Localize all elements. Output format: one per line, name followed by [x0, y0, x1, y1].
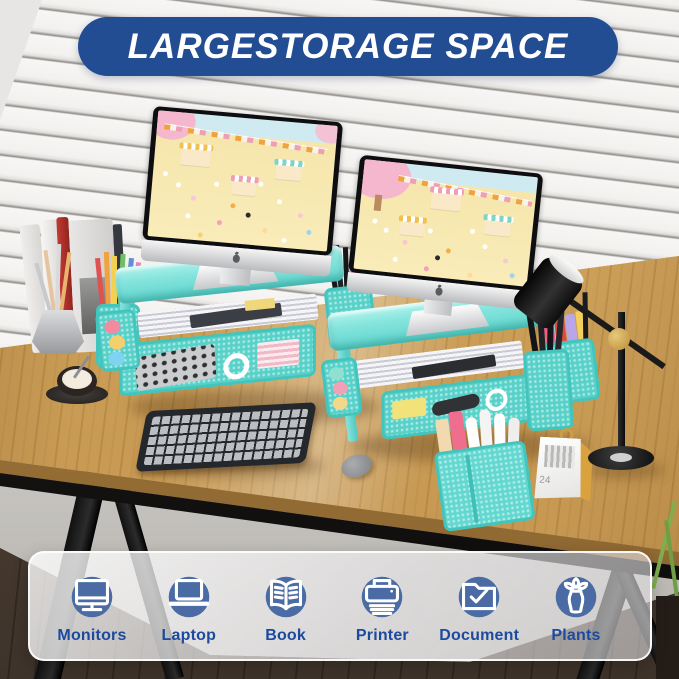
plant-vase [656, 596, 679, 679]
book-icon [257, 568, 315, 626]
feature-book: Book [238, 568, 334, 645]
feature-document: Document [431, 568, 527, 645]
imac-neck [220, 267, 251, 286]
lamp-base-cap [610, 453, 632, 462]
feature-plants: Plants [528, 568, 624, 645]
market-stall [399, 221, 424, 236]
wallpaper-market-scene [353, 159, 538, 287]
feature-printer: Printer [334, 568, 430, 645]
page-title: LARGESTORAGE SPACE [128, 27, 569, 67]
title-banner: LARGESTORAGE SPACE [78, 17, 618, 76]
washi-tape [104, 319, 121, 335]
mesh-caddy-box [434, 440, 536, 532]
feature-laptop: Laptop [141, 568, 237, 645]
product-image: 24 LARGESTORAGE SPACE [0, 0, 679, 679]
black-folder [412, 354, 497, 379]
cartoon-characters [163, 171, 168, 176]
market-stall [484, 220, 511, 237]
pink-tree [314, 118, 337, 145]
market-stall [430, 192, 462, 211]
feature-label: Monitors [57, 627, 126, 645]
feature-label: Plants [551, 627, 600, 645]
washi-tape-roll [223, 352, 249, 381]
yellow-pad [392, 397, 426, 419]
keyboard-keys [143, 409, 308, 466]
plants-icon [547, 568, 605, 626]
market-stall [180, 149, 211, 168]
market-stall [275, 165, 302, 181]
feature-monitors: Monitors [44, 568, 140, 645]
keyboard [135, 402, 317, 472]
monitor-icon [63, 568, 121, 626]
washi-tape [332, 396, 348, 411]
feature-label: Printer [356, 627, 409, 645]
washi-tape [332, 381, 348, 396]
calculator [135, 344, 217, 392]
side-pocket-left [320, 357, 363, 419]
document-icon [450, 568, 508, 626]
plant-stem [664, 520, 679, 604]
features-panel: Monitors Laptop Book [28, 551, 652, 661]
washi-tape [108, 351, 125, 367]
feature-label: Document [439, 627, 519, 645]
pen-holder-cone [30, 268, 90, 364]
feature-label: Book [265, 627, 306, 645]
wallpaper-market-scene [147, 110, 337, 251]
imac-screen [142, 106, 343, 256]
washi-tape [108, 335, 125, 351]
side-pocket-left [95, 309, 141, 373]
lamp-base [588, 446, 654, 470]
sticky-notes [257, 339, 299, 370]
tree-trunk [374, 194, 383, 211]
calendar-art [544, 445, 575, 469]
calendar-day: 24 [539, 475, 551, 487]
cone-holder-body [32, 310, 84, 354]
feature-label: Laptop [162, 627, 217, 645]
imac-screen [348, 155, 543, 292]
caddy-divider [465, 455, 478, 523]
mesh-pen-cup [523, 349, 574, 432]
laptop-icon [160, 568, 218, 626]
imac-left [139, 106, 345, 293]
washi-tape [328, 366, 344, 381]
bunting-flags [398, 175, 532, 207]
calendar-page: 24 [534, 437, 583, 501]
marker-caddy [427, 396, 540, 538]
desk-calendar: 24 [534, 429, 596, 506]
apple-logo [435, 287, 443, 296]
plant-corner [652, 500, 679, 679]
cartoon-characters [372, 218, 377, 223]
market-stall [231, 181, 256, 196]
lamp-joint-gold [608, 328, 630, 350]
printer-icon [353, 568, 411, 626]
apple-logo [232, 254, 240, 263]
